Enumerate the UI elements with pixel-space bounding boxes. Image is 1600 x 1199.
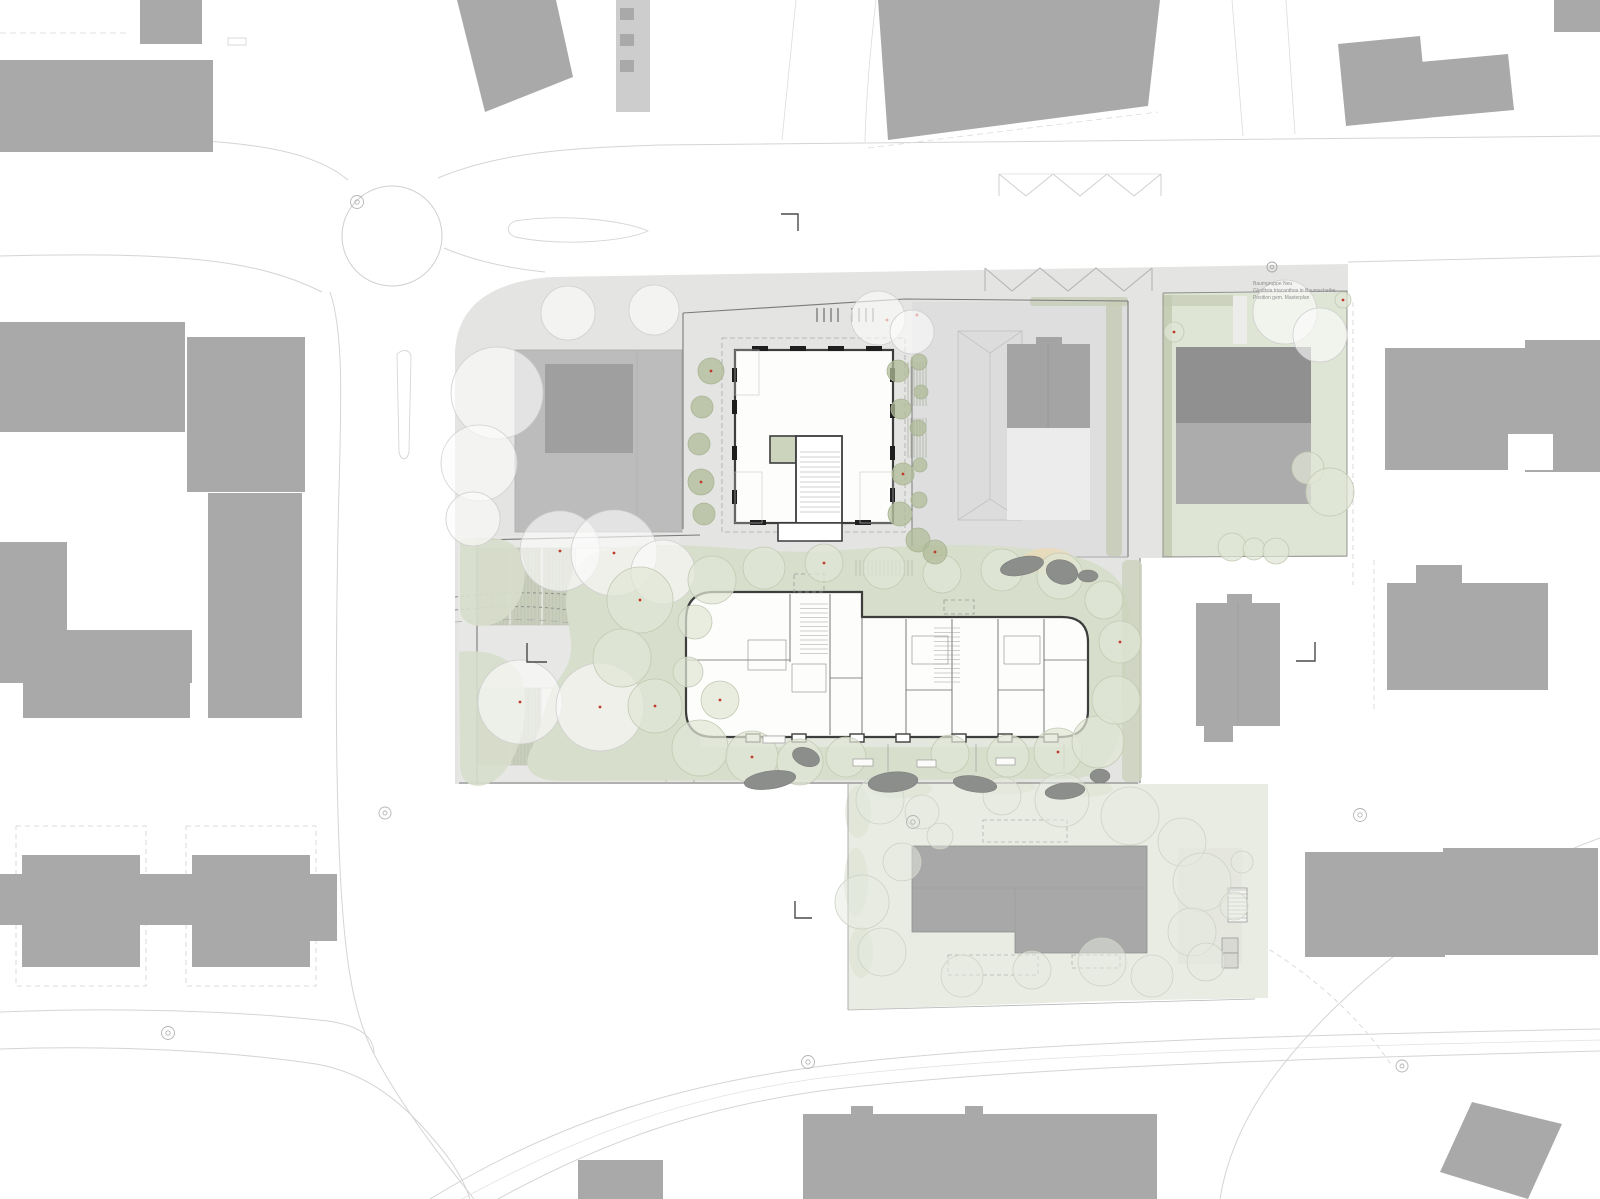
tree [910,420,926,436]
tree [628,679,682,733]
manhole-outer [351,196,364,209]
annex-flat-roof [1007,344,1090,428]
tree [1078,938,1126,986]
manhole-inner [383,811,387,815]
manhole-inner [166,1031,170,1035]
tower-window-n4 [866,346,882,351]
context-building-bottomcenter-small [578,1160,663,1199]
tree [1092,676,1140,724]
annotation-line-1: Baumgruppe Neu [1253,281,1292,287]
tree [688,469,714,495]
roundabout-circle [342,186,442,286]
tree [446,492,500,546]
tree [911,492,927,508]
tree [905,795,939,829]
tree [911,354,927,370]
tree [593,629,651,687]
site-plan-canvas: Baumgruppe Neu Gleditsia triacanthos in … [0,0,1600,1199]
context-building-left-3 [208,493,302,718]
tree [883,843,921,881]
manhole-outer [379,807,391,819]
tree [927,823,953,849]
bus-stop-mark [228,38,246,45]
corner-marker [795,901,812,918]
tree [1263,538,1289,564]
tower-core-elevator [770,436,796,463]
context-building-right-lower-tab [1416,565,1462,583]
tree [541,286,595,340]
tree [1218,533,1246,561]
tree [701,681,739,719]
parcel-line-top-4 [1286,0,1295,134]
boulder [1090,769,1110,783]
corner-marker [1296,642,1315,661]
rowhouse-tab [310,876,337,941]
tree [629,285,679,335]
context-building-right-upper-notch [1508,434,1553,470]
tree [691,396,713,418]
context-building-topright-corner [1554,0,1600,32]
tree [987,735,1029,777]
road-bottomleft-south-edge [0,1048,470,1199]
context-building-topright-1 [1338,36,1428,126]
tower-window-s2 [855,520,871,525]
tower-window-w1 [732,368,737,382]
context-building-right-upper-w [1385,348,1525,470]
tree [441,425,517,501]
tree [863,547,905,589]
tree [1220,892,1248,920]
road-west-east-edge [330,292,474,1199]
zigzag-median [999,174,1161,196]
manhole-outer [162,1027,175,1040]
tower-window-n3 [828,346,844,351]
tree [890,310,934,354]
context-building-left-2 [187,337,305,492]
rowhouse-west-block [22,855,140,967]
tower-window-w4 [732,490,737,504]
manhole-outer [802,1056,815,1069]
pergola-square-1 [1222,938,1238,953]
tree [1164,322,1184,342]
bench [917,760,936,767]
road-top-right-south-edge [1348,256,1600,262]
tree [1085,581,1123,619]
tree [688,433,710,455]
hedge-site-east [1122,560,1142,782]
context-building-topcenter-west [457,0,573,112]
manhole-outer [1354,809,1367,822]
tree [892,463,914,485]
tree [923,540,947,564]
tree [678,605,712,639]
tower-window-w2 [732,400,737,414]
context-building-right-lower [1387,583,1548,690]
tree [826,737,866,777]
tree [891,399,911,419]
annex-tab [1036,337,1062,344]
strip-unit-2 [620,34,634,46]
context-building-bottomright-rotated [1440,1102,1562,1199]
bench [996,758,1015,765]
tree [451,347,543,439]
tree [1335,292,1351,308]
parcel-line-top-2 [865,0,876,142]
tree [688,556,736,604]
site-plan-drawing: Baumgruppe Neu Gleditsia triacanthos in … [0,0,1600,1199]
tree [941,955,983,997]
manhole-outer [1396,1060,1408,1072]
strip-unit-1 [620,8,634,20]
context-building-topright-2 [1420,54,1514,118]
context-building-left-5 [23,683,190,718]
context-building-bottomright-w [1305,852,1445,957]
context-building-topcenter-east [878,0,1160,140]
tower-window-s1 [750,520,766,525]
bench [763,736,785,743]
tree [1306,468,1354,516]
hedge-middle-parcel-north [1030,297,1128,306]
tree [743,547,785,589]
tree [698,358,724,384]
tree [1131,955,1173,997]
context-building-bottomcenter-large [803,1106,1157,1199]
balcony-support-4 [896,734,910,742]
context-building-bottomright-e [1443,848,1598,955]
tower-window-n2 [790,346,806,351]
traffic-island-south [397,350,411,458]
road-top-east-south-edge [444,248,545,272]
boulder [1078,570,1098,582]
annotation-line-3: Position gem. Masterplan [1253,295,1310,301]
tree [478,660,562,744]
tower-entrance-vestibule [778,523,842,541]
context-building-left-1 [0,322,185,432]
corner-marker [781,214,798,231]
tower-window-e3 [890,446,895,460]
context-building-topleft-main [0,60,213,152]
tree [805,544,843,582]
tree [913,458,927,472]
tree [1231,851,1253,873]
tree [1013,951,1051,989]
parcel-line-top-3 [1232,0,1243,136]
annotation-line-2: Gleditsia triacanthos in Baumscheibe, [1253,288,1337,294]
tree [1293,308,1347,362]
generated-plan-layers [0,0,1600,1199]
tower-window-w3 [732,446,737,460]
road-top-east-north-edge [438,136,1600,178]
parcel-line-top-1 [782,0,796,140]
tower-core-stairshaft [796,436,842,523]
tree [1243,538,1265,560]
rowhouse-east-block [192,855,310,967]
tree [1035,773,1089,827]
manhole-inner [1400,1064,1404,1068]
tree [672,720,728,776]
tree [1099,621,1141,663]
tower-window-e4 [890,488,895,502]
road-top-west-south-edge [0,255,322,292]
tree [693,503,715,525]
traffic-island-east [508,218,648,242]
tree [673,657,703,687]
tree [607,567,673,633]
manhole-inner [806,1060,810,1064]
tree [835,875,889,929]
tree [1101,787,1159,845]
hedge-middle-parcel-east [1106,300,1122,556]
manhole-inner [1358,813,1362,817]
bench [853,759,873,766]
lawn-building-light-half [1176,423,1311,504]
tree [914,385,928,399]
tree [1187,943,1225,981]
context-building-topleft-small [140,0,202,44]
strip-unit-3 [620,60,634,72]
tree [858,928,906,976]
tree [931,735,969,773]
context-building-midright-tab-s [1204,726,1233,742]
hedge-lawn-north [1163,295,1233,306]
context-building-midright-tab-n [1227,594,1252,603]
school-building-upper-volume [545,364,633,453]
context-building-left-4 [0,542,192,683]
tree [888,502,912,526]
annex-terrace [1007,428,1090,520]
lawn-walkway [1233,296,1247,344]
lawn-building-dark-half [1176,347,1311,423]
tree [887,360,909,382]
